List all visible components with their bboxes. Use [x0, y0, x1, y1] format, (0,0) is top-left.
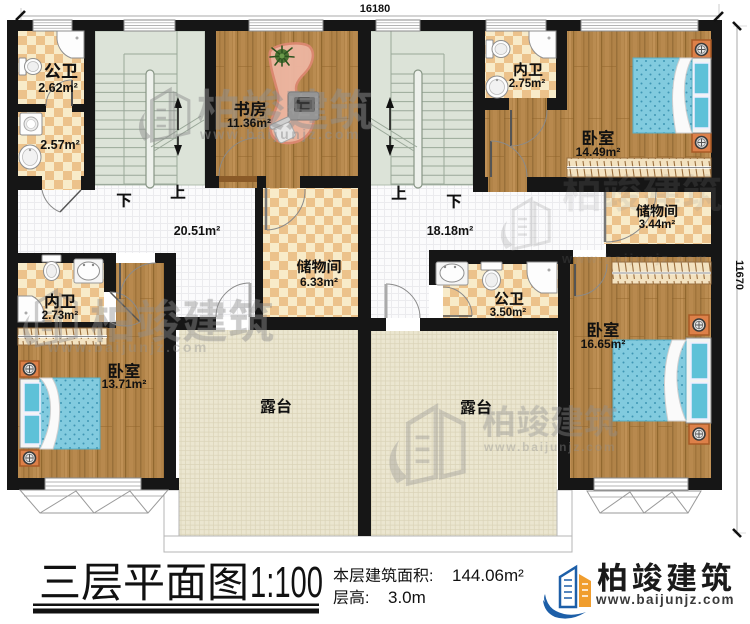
svg-text:3.44m²: 3.44m² — [639, 219, 676, 231]
svg-text:18.18m²: 18.18m² — [427, 224, 474, 238]
svg-text:www.baijunjz.com: www.baijunjz.com — [199, 126, 361, 142]
svg-text:2.73m²: 2.73m² — [42, 310, 79, 322]
svg-text:www.baijunjz.com: www.baijunjz.com — [47, 339, 209, 355]
svg-text:6.33m²: 6.33m² — [300, 275, 338, 289]
svg-text:16.65m²: 16.65m² — [581, 337, 626, 351]
svg-text:16180: 16180 — [360, 3, 391, 15]
svg-text:11670: 11670 — [733, 260, 745, 290]
svg-text:3.50m²: 3.50m² — [490, 307, 527, 319]
svg-text:14.49m²: 14.49m² — [576, 145, 621, 159]
svg-text:144.06m²: 144.06m² — [452, 566, 524, 585]
svg-text:2.57m²: 2.57m² — [40, 138, 80, 152]
svg-text:13.71m²: 13.71m² — [102, 377, 147, 391]
svg-text:www.baijunjz.com: www.baijunjz.com — [595, 592, 735, 607]
svg-text::: : — [365, 590, 369, 607]
svg-text::: : — [429, 568, 433, 585]
svg-text:1:100: 1:100 — [250, 558, 323, 607]
svg-text:www.baijunjz.com: www.baijunjz.com — [483, 440, 616, 454]
svg-text:2.62m²: 2.62m² — [38, 81, 78, 95]
svg-text:20.51m²: 20.51m² — [174, 224, 221, 238]
svg-text:www.baijunjz.com: www.baijunjz.com — [561, 251, 709, 266]
svg-text:11.36m²: 11.36m² — [227, 116, 271, 130]
svg-text:2.75m²: 2.75m² — [509, 78, 546, 90]
svg-text:3.0m: 3.0m — [388, 588, 426, 607]
